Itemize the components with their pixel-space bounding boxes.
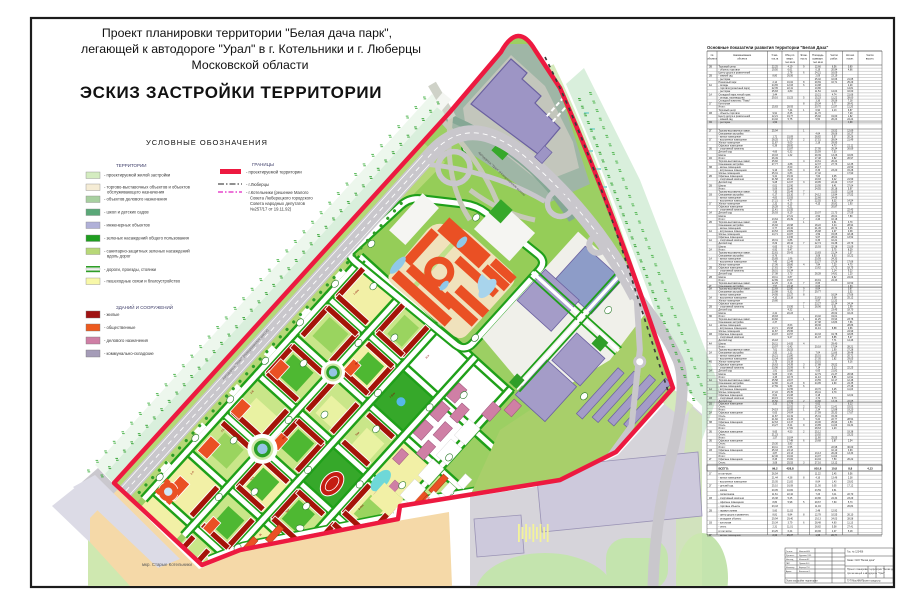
svg-text:4,66: 4,66 bbox=[848, 69, 853, 72]
svg-text:11,13: 11,13 bbox=[847, 522, 853, 525]
svg-text:28,28: 28,28 bbox=[815, 273, 822, 276]
svg-text:24,03: 24,03 bbox=[831, 518, 838, 521]
svg-text:- проектируемой территории: - проектируемой территории bbox=[246, 170, 302, 175]
svg-text:4,15: 4,15 bbox=[815, 203, 820, 206]
svg-text:- жилые: - жилые bbox=[104, 312, 120, 317]
svg-text:3В: 3В bbox=[709, 166, 712, 169]
svg-text:10,8: 10,8 bbox=[831, 467, 837, 471]
svg-text:15,23: 15,23 bbox=[787, 96, 794, 99]
svg-text:21,44: 21,44 bbox=[772, 477, 779, 480]
svg-text:1,82: 1,82 bbox=[832, 358, 837, 361]
svg-text:15,93: 15,93 bbox=[815, 245, 822, 248]
svg-text:20,34: 20,34 bbox=[772, 522, 779, 525]
svg-text:17,90: 17,90 bbox=[847, 172, 854, 175]
svg-text:4Б: 4Б bbox=[709, 361, 712, 364]
svg-text:8,80: 8,80 bbox=[772, 75, 777, 78]
svg-text:19,34: 19,34 bbox=[847, 424, 854, 427]
svg-text:Общ.пл.: Общ.пл. bbox=[785, 53, 795, 57]
svg-text:Московской области: Московской области bbox=[192, 58, 309, 72]
svg-text:27,41: 27,41 bbox=[847, 526, 854, 529]
svg-text:29,42: 29,42 bbox=[787, 251, 794, 254]
svg-text:14,71: 14,71 bbox=[772, 233, 779, 236]
svg-text:25,12: 25,12 bbox=[847, 297, 854, 300]
svg-text:ЭСКИЗ ЗАСТРОЙКИ ТЕРРИТОРИИ: ЭСКИЗ ЗАСТРОЙКИ ТЕРРИТОРИИ bbox=[80, 83, 382, 102]
svg-text:Васильев О.: Васильев О. bbox=[799, 571, 811, 573]
svg-text:- зеленых насаждений общего по: - зеленых насаждений общего пользования bbox=[104, 236, 189, 241]
svg-text:13,33: 13,33 bbox=[847, 452, 854, 455]
svg-text:9,84: 9,84 bbox=[788, 513, 793, 516]
svg-text:1А: 1А bbox=[709, 388, 712, 391]
svg-text:10,82: 10,82 bbox=[787, 489, 794, 492]
svg-text:11,01: 11,01 bbox=[787, 526, 793, 529]
svg-text:2В: 2В bbox=[709, 184, 712, 187]
svg-text:26,74: 26,74 bbox=[831, 534, 838, 537]
svg-text:23,97: 23,97 bbox=[772, 333, 779, 336]
svg-text:- инженерных объектов: - инженерных объектов bbox=[104, 223, 151, 228]
svg-text:23,20: 23,20 bbox=[831, 169, 838, 172]
svg-text:- г.Котельники (решение Малого: - г.Котельники (решение Малого bbox=[246, 190, 309, 195]
svg-text:- делового назначения: - делового назначения bbox=[104, 338, 148, 343]
svg-text:8,81: 8,81 bbox=[772, 513, 777, 516]
svg-text:Гос. № 123456: Гос. № 123456 bbox=[847, 551, 864, 554]
svg-text:29,77: 29,77 bbox=[815, 290, 822, 293]
svg-text:тыс.кв.м: тыс.кв.м bbox=[785, 61, 795, 64]
svg-text:Инженер: Инженер bbox=[786, 567, 795, 569]
svg-text:- офисные помещения: - офисные помещения bbox=[719, 501, 745, 504]
svg-text:2В: 2В bbox=[709, 276, 712, 279]
svg-text:- встроенные помещения: - встроенные помещения bbox=[719, 481, 748, 484]
svg-text:5,98: 5,98 bbox=[788, 501, 793, 504]
svg-text:21,97: 21,97 bbox=[815, 336, 822, 339]
svg-text:в том числе:: в том числе: bbox=[719, 472, 733, 475]
svg-text:- жилые помещения: - жилые помещения bbox=[719, 477, 742, 480]
svg-text:1В: 1В bbox=[709, 397, 712, 400]
svg-text:26,69: 26,69 bbox=[847, 148, 854, 151]
svg-text:Гл.инж.: Гл.инж. bbox=[786, 551, 793, 553]
svg-text:22,42: 22,42 bbox=[787, 493, 794, 496]
svg-text:25,37: 25,37 bbox=[787, 534, 794, 537]
svg-text:1,57: 1,57 bbox=[772, 437, 777, 440]
svg-text:19,13: 19,13 bbox=[815, 518, 822, 521]
svg-text:объекта: объекта bbox=[737, 57, 747, 61]
svg-text:- дороги, проезды, стоянки: - дороги, проезды, стоянки bbox=[104, 267, 157, 272]
svg-text:8,64: 8,64 bbox=[815, 481, 820, 484]
svg-text:- гаражи-стоянки: - гаражи-стоянки bbox=[719, 509, 738, 512]
svg-text:Нач.отд.: Нач.отд. bbox=[786, 559, 794, 561]
svg-text:3Б: 3Б bbox=[709, 430, 712, 433]
svg-text:- спортивный комплекс: - спортивный комплекс bbox=[719, 497, 745, 500]
svg-text:11,02: 11,02 bbox=[787, 509, 793, 512]
svg-text:6,16: 6,16 bbox=[848, 361, 853, 364]
svg-text:4В: 4В bbox=[709, 112, 712, 115]
svg-text:22,70: 22,70 bbox=[847, 493, 854, 496]
svg-text:2А: 2А bbox=[709, 248, 712, 251]
svg-text:2,37: 2,37 bbox=[772, 321, 777, 324]
svg-text:- центр досуга и развлечен.: - центр досуга и развлечен. bbox=[719, 513, 750, 516]
svg-text:ТЕРРИТОРИИ: ТЕРРИТОРИИ bbox=[116, 163, 147, 168]
svg-text:2А: 2А bbox=[709, 351, 712, 354]
svg-text:- складские объекты: - складские объекты bbox=[719, 518, 742, 521]
svg-text:прилегающей к автодороге "Урал: прилегающей к автодороге "Урал" bbox=[847, 572, 885, 575]
svg-text:26,39: 26,39 bbox=[787, 218, 794, 221]
svg-text:- школа: - школа bbox=[719, 489, 728, 492]
svg-text:4,07: 4,07 bbox=[832, 530, 837, 533]
svg-text:мкр. Старые Котельники: мкр. Старые Котельники bbox=[142, 562, 192, 567]
svg-text:910,8: 910,8 bbox=[814, 467, 821, 471]
svg-text:28,82: 28,82 bbox=[815, 526, 822, 529]
svg-text:24,43: 24,43 bbox=[831, 279, 838, 282]
svg-text:Площадь: Площадь bbox=[812, 53, 824, 57]
svg-text:12,02: 12,02 bbox=[847, 394, 854, 397]
svg-text:- общественные: - общественные bbox=[104, 325, 136, 330]
svg-text:13,27: 13,27 bbox=[772, 424, 779, 427]
svg-text:15,83: 15,83 bbox=[772, 106, 779, 109]
svg-text:1Б: 1Б bbox=[709, 402, 712, 405]
svg-text:4А: 4А bbox=[709, 230, 712, 233]
svg-text:3А: 3А bbox=[709, 297, 712, 300]
svg-text:5,60: 5,60 bbox=[772, 509, 777, 512]
svg-text:28,58: 28,58 bbox=[847, 518, 854, 521]
svg-text:- торговые объекты: - торговые объекты bbox=[719, 505, 741, 508]
svg-text:20,05: 20,05 bbox=[772, 489, 779, 492]
svg-text:1В: 1В bbox=[709, 522, 712, 525]
svg-text:8,8: 8,8 bbox=[848, 467, 852, 471]
svg-text:17,59: 17,59 bbox=[772, 385, 779, 388]
svg-text:- г.Люберцы: - г.Люберцы bbox=[246, 182, 269, 187]
svg-text:428,8: 428,8 bbox=[787, 467, 794, 471]
svg-text:29,96: 29,96 bbox=[815, 530, 822, 533]
svg-text:- объектов делового назначения: - объектов делового назначения bbox=[104, 197, 167, 202]
svg-text:3А: 3А bbox=[709, 212, 712, 215]
svg-text:23,18: 23,18 bbox=[787, 297, 794, 300]
svg-text:ток,га: ток,га bbox=[771, 58, 778, 61]
svg-text:4,99: 4,99 bbox=[848, 121, 853, 124]
svg-text:Наименование: Наименование bbox=[733, 53, 752, 57]
svg-text:3Б: 3Б bbox=[709, 148, 712, 151]
svg-text:28,48: 28,48 bbox=[815, 522, 822, 525]
svg-text:- ресторан: - ресторан bbox=[719, 121, 731, 124]
svg-text:3В: 3В bbox=[709, 65, 712, 68]
svg-text:23,43: 23,43 bbox=[772, 505, 779, 508]
svg-text:4Б: 4Б bbox=[709, 121, 712, 124]
svg-text:8,80: 8,80 bbox=[772, 501, 777, 504]
svg-text:17,67: 17,67 bbox=[847, 412, 854, 415]
svg-text:- поликлиника: - поликлиника bbox=[719, 493, 735, 496]
svg-text:Кол-во: Кол-во bbox=[846, 53, 855, 57]
svg-text:27,16: 27,16 bbox=[815, 461, 822, 464]
svg-text:0,61: 0,61 bbox=[832, 489, 837, 492]
svg-text:26,22: 26,22 bbox=[847, 458, 854, 461]
svg-text:3,79: 3,79 bbox=[788, 522, 793, 525]
svg-text:27,52: 27,52 bbox=[847, 193, 854, 196]
svg-text:2,31: 2,31 bbox=[772, 526, 777, 529]
svg-text:23,29: 23,29 bbox=[847, 497, 854, 500]
svg-text:0,05: 0,05 bbox=[832, 485, 837, 488]
svg-text:2А: 2А bbox=[709, 412, 712, 415]
svg-text:29,16: 29,16 bbox=[772, 96, 779, 99]
svg-text:7,80: 7,80 bbox=[848, 215, 853, 218]
svg-text:2,13: 2,13 bbox=[832, 109, 837, 112]
svg-text:ГАП: ГАП bbox=[786, 562, 790, 565]
svg-text:29,94: 29,94 bbox=[772, 518, 779, 521]
svg-text:1,93: 1,93 bbox=[848, 203, 853, 206]
svg-text:- детский сад: - детский сад bbox=[719, 485, 734, 488]
svg-text:Рук.маст.: Рук.маст. bbox=[786, 555, 795, 557]
svg-text:22,25: 22,25 bbox=[847, 367, 854, 370]
svg-text:Совета Люберецкого городского: Совета Люберецкого городского bbox=[250, 196, 313, 201]
svg-text:16,23: 16,23 bbox=[847, 312, 854, 315]
svg-text:13,46: 13,46 bbox=[831, 477, 838, 480]
svg-text:21,49: 21,49 bbox=[847, 139, 854, 142]
svg-text:13,62: 13,62 bbox=[815, 267, 822, 270]
svg-text:Учас-: Учас- bbox=[771, 53, 778, 57]
svg-text:3А: 3А bbox=[709, 287, 712, 290]
svg-text:24,34: 24,34 bbox=[831, 497, 838, 500]
svg-text:работ.: работ. bbox=[831, 57, 839, 61]
svg-text:в том числе:: в том числе: bbox=[719, 530, 733, 533]
svg-text:7,23: 7,23 bbox=[815, 493, 820, 496]
svg-text:легающей к автодороге "Урал" в: легающей к автодороге "Урал" в г. Котель… bbox=[81, 42, 421, 56]
svg-text:высел.: высел. bbox=[866, 58, 874, 61]
svg-text:№257/17 от 19.11.92): №257/17 от 19.11.92) bbox=[250, 207, 292, 212]
svg-text:объекта: объекта bbox=[707, 57, 717, 61]
svg-text:1А: 1А bbox=[709, 93, 712, 96]
svg-text:1,95: 1,95 bbox=[815, 534, 820, 537]
svg-text:9,56: 9,56 bbox=[848, 472, 853, 475]
svg-text:1В: 1В bbox=[709, 449, 712, 452]
svg-text:1А: 1А bbox=[709, 257, 712, 260]
svg-text:ГУП МосНИИПроект градостр.: ГУП МосНИИПроект градостр. bbox=[847, 580, 881, 583]
svg-text:2,46: 2,46 bbox=[815, 218, 820, 221]
svg-text:вдоль дорог: вдоль дорог bbox=[107, 254, 131, 259]
svg-text:4,16: 4,16 bbox=[815, 477, 820, 480]
svg-text:17,12: 17,12 bbox=[847, 485, 854, 488]
svg-text:2В: 2В bbox=[709, 509, 712, 512]
svg-text:11,03: 11,03 bbox=[847, 388, 853, 391]
svg-text:13,12: 13,12 bbox=[831, 461, 838, 464]
svg-text:- отель: - отель bbox=[719, 526, 727, 529]
svg-text:Пупков В.С.: Пупков В.С. bbox=[799, 563, 810, 565]
svg-text:Хурнова Л.М.: Хурнова Л.М. bbox=[799, 555, 812, 557]
svg-text:2В: 2В bbox=[709, 306, 712, 309]
svg-text:1А: 1А bbox=[709, 324, 712, 327]
svg-text:2Б: 2Б bbox=[709, 175, 712, 178]
svg-text:Проект планировки территории: Проект планировки территории "Белая дача… bbox=[102, 26, 392, 40]
svg-text:4,80: 4,80 bbox=[788, 90, 793, 93]
svg-text:13,83: 13,83 bbox=[831, 321, 838, 324]
svg-text:1,23: 1,23 bbox=[832, 427, 837, 430]
svg-text:27,77: 27,77 bbox=[772, 163, 779, 166]
svg-text:11,44: 11,44 bbox=[815, 327, 821, 330]
svg-text:12,78: 12,78 bbox=[815, 513, 822, 516]
svg-text:2В: 2В bbox=[709, 267, 712, 270]
svg-text:4,60: 4,60 bbox=[832, 522, 837, 525]
svg-text:26,97: 26,97 bbox=[847, 157, 854, 160]
svg-text:11,04: 11,04 bbox=[815, 505, 821, 508]
svg-text:8,88: 8,88 bbox=[832, 327, 837, 330]
svg-text:5,75: 5,75 bbox=[788, 118, 793, 121]
svg-text:тыс.кв.м: тыс.кв.м bbox=[813, 61, 823, 64]
svg-text:10,55: 10,55 bbox=[831, 513, 838, 516]
svg-text:2,48: 2,48 bbox=[815, 509, 820, 512]
svg-text:- жилые помещения: - жилые помещения bbox=[719, 534, 742, 537]
svg-text:7,60: 7,60 bbox=[832, 501, 837, 504]
svg-text:27,73: 27,73 bbox=[831, 163, 838, 166]
svg-text:ЗДАНИЙ И СООРУЖЕНИЙ: ЗДАНИЙ И СООРУЖЕНИЙ bbox=[116, 303, 173, 310]
svg-text:3А: 3А bbox=[709, 370, 712, 373]
svg-text:3Б: 3Б bbox=[709, 440, 712, 443]
svg-text:21,56: 21,56 bbox=[815, 485, 822, 488]
svg-text:24,55: 24,55 bbox=[815, 187, 822, 190]
svg-text:25,53: 25,53 bbox=[787, 461, 794, 464]
svg-text:Совета народных депутатов: Совета народных депутатов bbox=[250, 201, 306, 206]
svg-text:ность: ность bbox=[800, 58, 807, 61]
svg-text:11,22: 11,22 bbox=[815, 472, 821, 475]
svg-text:Иванов А.В.: Иванов А.В. bbox=[799, 550, 811, 553]
svg-text:25,10: 25,10 bbox=[772, 485, 779, 488]
svg-text:- школ и детских садов: - школ и детских садов bbox=[104, 210, 149, 215]
svg-text:19,50: 19,50 bbox=[772, 69, 779, 72]
svg-text:99,2: 99,2 bbox=[772, 467, 778, 471]
svg-text:20,23: 20,23 bbox=[787, 312, 794, 315]
svg-text:Вернер П.К.: Вернер П.К. bbox=[799, 567, 811, 569]
svg-text:9,27: 9,27 bbox=[788, 336, 793, 339]
svg-text:УСЛОВНЫЕ ОБОЗНАЧЕНИЯ: УСЛОВНЫЕ ОБОЗНАЧЕНИЯ bbox=[146, 138, 268, 147]
svg-text:2,90: 2,90 bbox=[832, 382, 837, 385]
svg-text:0,79: 0,79 bbox=[832, 391, 837, 394]
svg-text:29,40: 29,40 bbox=[787, 518, 794, 521]
svg-text:3,08: 3,08 bbox=[772, 461, 777, 464]
svg-text:4А: 4А bbox=[709, 239, 712, 242]
svg-text:посет.: посет. bbox=[847, 58, 855, 61]
svg-text:3,87: 3,87 bbox=[832, 440, 837, 443]
svg-text:2В: 2В bbox=[709, 75, 712, 78]
svg-text:Этаж-: Этаж- bbox=[800, 53, 807, 57]
svg-text:6,44: 6,44 bbox=[788, 530, 793, 533]
svg-text:20,18: 20,18 bbox=[815, 345, 822, 348]
svg-text:6,39: 6,39 bbox=[772, 145, 777, 148]
svg-text:1,52: 1,52 bbox=[772, 121, 777, 124]
svg-text:2,18: 2,18 bbox=[815, 142, 820, 145]
svg-text:19,68: 19,68 bbox=[815, 440, 822, 443]
svg-text:3В: 3В bbox=[709, 421, 712, 424]
svg-text:обслуживающего назначения: обслуживающего назначения bbox=[107, 190, 164, 195]
svg-text:25,94: 25,94 bbox=[772, 129, 779, 132]
svg-text:Число: Число bbox=[866, 53, 874, 57]
svg-text:3Б: 3Б bbox=[709, 315, 712, 318]
svg-text:- коммунально-складские: - коммунально-складские bbox=[104, 351, 154, 356]
svg-text:1В: 1В bbox=[709, 193, 712, 196]
svg-text:23,23: 23,23 bbox=[847, 433, 854, 436]
svg-text:Отель: Отель bbox=[719, 461, 727, 464]
svg-text:ВСЕГО:: ВСЕГО: bbox=[719, 467, 730, 471]
svg-text:25,05: 25,05 bbox=[772, 481, 779, 484]
svg-text:28,96: 28,96 bbox=[815, 306, 822, 309]
svg-text:4А: 4А bbox=[709, 342, 712, 345]
svg-text:19,80: 19,80 bbox=[772, 300, 779, 303]
svg-text:20,86: 20,86 bbox=[815, 497, 822, 500]
svg-text:3,33: 3,33 bbox=[772, 402, 777, 405]
svg-text:24,64: 24,64 bbox=[847, 276, 854, 279]
svg-text:Архит.: Архит. bbox=[786, 570, 792, 573]
svg-text:1,32: 1,32 bbox=[788, 154, 793, 157]
svg-text:2,38: 2,38 bbox=[848, 477, 853, 480]
svg-text:26,23: 26,23 bbox=[831, 118, 838, 121]
svg-text:- пешеходные связи и благоустр: - пешеходные связи и благоустройство bbox=[104, 279, 181, 284]
svg-text:16,38: 16,38 bbox=[772, 497, 779, 500]
svg-text:5,50: 5,50 bbox=[815, 118, 820, 121]
svg-text:14,46: 14,46 bbox=[847, 339, 854, 342]
svg-text:5,73: 5,73 bbox=[848, 501, 853, 504]
svg-text:Эскиз застройки территории: Эскиз застройки территории bbox=[786, 580, 818, 583]
svg-text:3,11: 3,11 bbox=[832, 493, 837, 496]
svg-text:23,25: 23,25 bbox=[772, 530, 779, 533]
svg-text:26,10: 26,10 bbox=[847, 513, 854, 516]
svg-text:1Б: 1Б bbox=[709, 157, 712, 160]
svg-text:5,58: 5,58 bbox=[832, 526, 837, 529]
svg-text:4А: 4А bbox=[709, 84, 712, 87]
svg-text:26,54: 26,54 bbox=[772, 472, 779, 475]
svg-text:Заказ: ОАО "Белая дача": Заказ: ОАО "Белая дача" bbox=[847, 559, 875, 562]
svg-text:Мазаев А.Г.: Мазаев А.Г. bbox=[799, 558, 810, 561]
svg-text:4,38: 4,38 bbox=[788, 477, 793, 480]
svg-text:13,52: 13,52 bbox=[847, 236, 854, 239]
svg-text:4,13: 4,13 bbox=[867, 467, 873, 471]
svg-text:Основные показатели развития т: Основные показатели развития территории … bbox=[707, 45, 828, 50]
svg-text:24,95: 24,95 bbox=[815, 382, 822, 385]
svg-text:4А: 4А bbox=[709, 379, 712, 382]
svg-text:4В: 4В bbox=[709, 333, 712, 336]
svg-text:16,08: 16,08 bbox=[787, 485, 794, 488]
svg-text:2,63: 2,63 bbox=[772, 534, 777, 537]
svg-text:26,84: 26,84 bbox=[847, 505, 854, 508]
svg-text:2,54: 2,54 bbox=[848, 440, 853, 443]
svg-text:ГРАНИЦЫ: ГРАНИЦЫ bbox=[252, 162, 274, 167]
svg-text:26,93: 26,93 bbox=[772, 212, 779, 215]
svg-text:2Б: 2Б bbox=[709, 221, 712, 224]
svg-text:10,22: 10,22 bbox=[847, 254, 854, 257]
svg-text:23,59: 23,59 bbox=[815, 489, 822, 492]
svg-text:- котельная: - котельная bbox=[719, 522, 732, 525]
svg-text:21,82: 21,82 bbox=[787, 481, 794, 484]
svg-text:1В: 1В bbox=[709, 497, 712, 500]
svg-text:4,53: 4,53 bbox=[788, 430, 793, 433]
svg-text:26,56: 26,56 bbox=[787, 75, 794, 78]
svg-text:11,61: 11,61 bbox=[772, 493, 778, 496]
svg-text:Число: Число bbox=[830, 53, 838, 57]
svg-text:23,82: 23,82 bbox=[847, 481, 854, 484]
svg-text:5,25: 5,25 bbox=[788, 497, 793, 500]
svg-text:16,71: 16,71 bbox=[831, 81, 838, 84]
svg-text:- проектируемой жилой застройк: - проектируемой жилой застройки bbox=[104, 173, 171, 178]
svg-text:1,43: 1,43 bbox=[832, 481, 837, 484]
svg-text:12,92: 12,92 bbox=[831, 509, 838, 512]
svg-text:20,87: 20,87 bbox=[831, 206, 838, 209]
svg-text:5,18: 5,18 bbox=[848, 530, 853, 533]
svg-text:29,67: 29,67 bbox=[815, 501, 822, 504]
svg-text:2,45: 2,45 bbox=[832, 472, 837, 475]
